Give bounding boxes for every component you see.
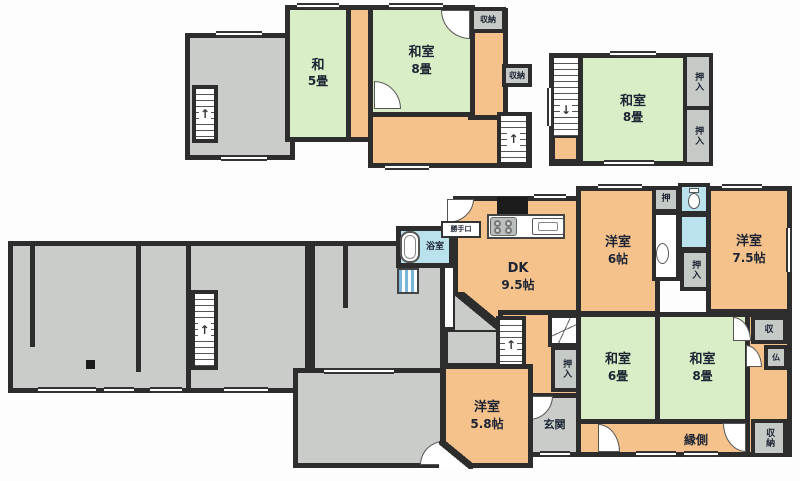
room-washitsu-8-f2-right: 和室 8畳 — [578, 53, 688, 166]
gray-passage — [443, 327, 502, 368]
room-washitsu-6-f1: 和室 6畳 — [576, 312, 660, 424]
window — [534, 194, 566, 200]
room-label: 洋室 — [605, 235, 631, 251]
altar-box: 仏 — [764, 345, 788, 370]
partition-wall — [343, 246, 348, 308]
refrigerator-space — [497, 197, 528, 214]
window — [324, 368, 394, 374]
room-label: 玄関 — [544, 418, 566, 432]
washbasin-icon — [656, 243, 669, 264]
room-size: 7.5帖 — [732, 251, 765, 266]
wet-area — [678, 213, 710, 251]
stair-direction-arrow: ↑ — [199, 107, 211, 121]
window — [598, 184, 642, 190]
partition-wall — [136, 246, 141, 372]
room-label: 和室 — [620, 94, 646, 110]
staircase-icon: ↑ — [497, 112, 530, 166]
floor-plan: ↑ 和 5畳 和室 8畳 収納 収納 ↑ ↓ 和室 8畳 押入 押入 ↑ — [0, 0, 800, 481]
room-label: 和室 — [408, 45, 434, 61]
partition-wall — [30, 246, 35, 347]
sink-icon — [532, 218, 564, 235]
window — [547, 88, 553, 126]
closet-box: 押入 — [680, 249, 710, 291]
room-size: 8畳 — [692, 369, 712, 384]
storage-box: 収 — [751, 316, 787, 344]
post-marker — [86, 360, 95, 369]
storage-box: 収納 — [502, 64, 532, 87]
window — [221, 155, 267, 161]
window — [610, 51, 656, 57]
back-door-label: 勝手口 — [441, 221, 481, 238]
bathtub-icon — [400, 231, 420, 263]
room-size: 5畳 — [308, 74, 328, 89]
window — [385, 164, 429, 170]
window — [216, 31, 262, 37]
room-label: DK — [508, 261, 529, 277]
room-yoshitsu-75: 洋室 7.5帖 — [706, 186, 792, 314]
diagonal-wall — [455, 292, 501, 330]
closet-box: 押 — [652, 186, 680, 213]
room-label: 和室 — [689, 352, 715, 368]
room-size: 8畳 — [623, 110, 643, 125]
window — [389, 3, 443, 9]
garage-area — [8, 241, 310, 393]
room-label: 縁側 — [684, 433, 708, 448]
diagonal-wall — [439, 441, 473, 469]
window — [224, 387, 268, 393]
room-label: 洋室 — [474, 400, 500, 416]
staircase-icon: ↑ — [192, 85, 218, 143]
stair-direction-arrow: ↑ — [198, 323, 210, 337]
toilet-bowl-icon — [688, 193, 700, 209]
room-size: 8畳 — [411, 62, 431, 77]
room-label: 浴室 — [426, 243, 444, 252]
room-washitsu-5-f2: 和 5畳 — [285, 5, 351, 142]
window — [722, 184, 762, 190]
staircase-icon: ↑ — [191, 290, 218, 370]
window — [104, 387, 134, 393]
washing-machine-icon — [397, 268, 419, 294]
room-size: 6帖 — [608, 252, 628, 267]
window — [604, 160, 654, 166]
stair-direction-arrow: ↑ — [507, 132, 519, 146]
window — [786, 228, 792, 272]
stair-direction-arrow: ↓ — [560, 103, 572, 117]
room-yoshitsu-6: 洋室 6帖 — [576, 186, 660, 316]
window — [38, 387, 96, 393]
window — [150, 387, 182, 393]
window — [297, 3, 339, 9]
room-label: 洋室 — [736, 234, 762, 250]
storage-box: 収納 — [470, 7, 506, 33]
closet-box: 押入 — [683, 53, 713, 111]
room-size: 6畳 — [608, 369, 628, 384]
room-label: 和室 — [605, 352, 631, 368]
f2r-landing — [553, 136, 578, 161]
closet-box: 押入 — [683, 106, 713, 166]
room-size: 9.5帖 — [501, 278, 534, 293]
room-size: 5.8帖 — [470, 417, 503, 432]
window — [684, 451, 718, 457]
window — [540, 451, 570, 457]
stair-direction-arrow: ↑ — [505, 338, 517, 352]
window — [636, 451, 676, 457]
storage-box: 収納 — [751, 419, 787, 457]
room-label: 和 — [311, 58, 324, 74]
stove-icon — [490, 217, 517, 236]
